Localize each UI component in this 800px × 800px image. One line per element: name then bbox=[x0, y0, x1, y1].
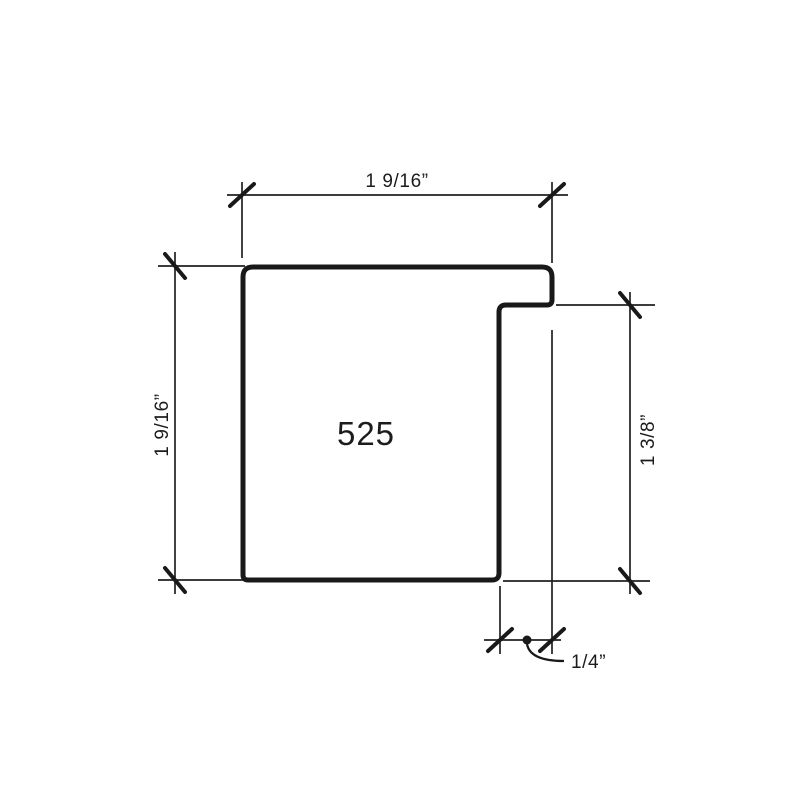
profile-outline bbox=[243, 267, 552, 580]
moulding-profile-drawing: 1 9/16” 1 9/16” 1 3/8” 1/4” 525 bbox=[0, 0, 800, 800]
dimension-left-label: 1 9/16” bbox=[152, 393, 173, 456]
profile-drawing-svg: 1 9/16” 1 9/16” 1 3/8” 1/4” 525 bbox=[0, 0, 800, 800]
profile-number-label: 525 bbox=[337, 415, 395, 452]
dimension-right-label: 1 3/8” bbox=[638, 414, 659, 466]
dimension-right bbox=[503, 292, 655, 594]
dimension-bottom-label: 1/4” bbox=[571, 652, 606, 673]
dimension-top bbox=[227, 182, 568, 263]
leader-dot bbox=[523, 636, 532, 645]
dimension-top-label: 1 9/16” bbox=[365, 171, 428, 192]
